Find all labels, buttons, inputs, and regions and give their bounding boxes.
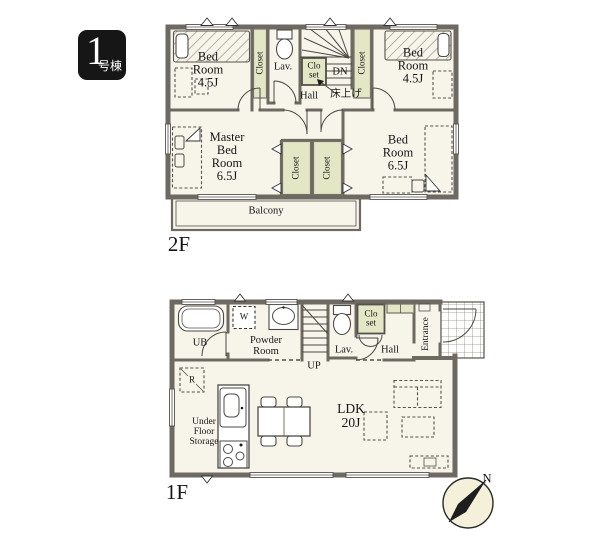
bedroom-nw-label: Bed Room 4.5J bbox=[193, 51, 224, 90]
hall-1f-label: Hall bbox=[381, 346, 399, 357]
under-floor-storage-label: Under Floor Storage bbox=[189, 418, 218, 448]
hall-note-label: 床上げ bbox=[330, 90, 362, 101]
bedroom-ne-label: Bed Room 4.5J bbox=[398, 47, 429, 86]
stairs-up-label: UP bbox=[307, 362, 320, 373]
lav-2f-label: Lav. bbox=[274, 63, 292, 74]
hall-2f-label: Hall bbox=[300, 92, 318, 103]
powder-room-label: Powder Room bbox=[250, 336, 282, 358]
floor-2f-title: 2F bbox=[168, 234, 190, 256]
stairs-dn-label: DN bbox=[332, 68, 347, 79]
compass bbox=[443, 478, 493, 528]
ub-label: UB bbox=[193, 339, 208, 350]
fridge-label: R bbox=[189, 375, 195, 384]
floor-1f-title: 1F bbox=[166, 482, 188, 504]
closet-label: Closet bbox=[291, 156, 300, 179]
balcony-label: Balcony bbox=[249, 207, 284, 218]
bedroom-se-label: Bed Room 6.5J bbox=[383, 134, 414, 173]
entrance-label: Entrance bbox=[422, 317, 432, 351]
master-bedroom-label: Master Bed Room 6.5J bbox=[210, 131, 245, 183]
closet-label: Closet bbox=[255, 51, 264, 74]
lav-1f-label: Lav. bbox=[335, 346, 353, 357]
floor-1f-plan bbox=[170, 294, 485, 483]
floor-plan-drawing bbox=[0, 0, 600, 545]
building-badge: 1 号棟 bbox=[78, 30, 126, 80]
closet-label: Closet bbox=[322, 156, 331, 179]
closet-small-2f-label: Clo set bbox=[307, 62, 320, 81]
floor-plan-page: 1 号棟 Bed Room 4.5J Closet Closet Closet … bbox=[0, 0, 600, 545]
north-label: N bbox=[482, 473, 491, 486]
toilet-2f bbox=[277, 30, 292, 39]
washer-label: W bbox=[240, 312, 249, 321]
building-suffix: 号棟 bbox=[98, 57, 122, 74]
ldk-label: LDK 20J bbox=[337, 402, 365, 430]
closet-label: Closet bbox=[357, 51, 366, 74]
closet-small-1f-label: Clo set bbox=[364, 310, 377, 329]
entrance-porch bbox=[441, 302, 484, 358]
